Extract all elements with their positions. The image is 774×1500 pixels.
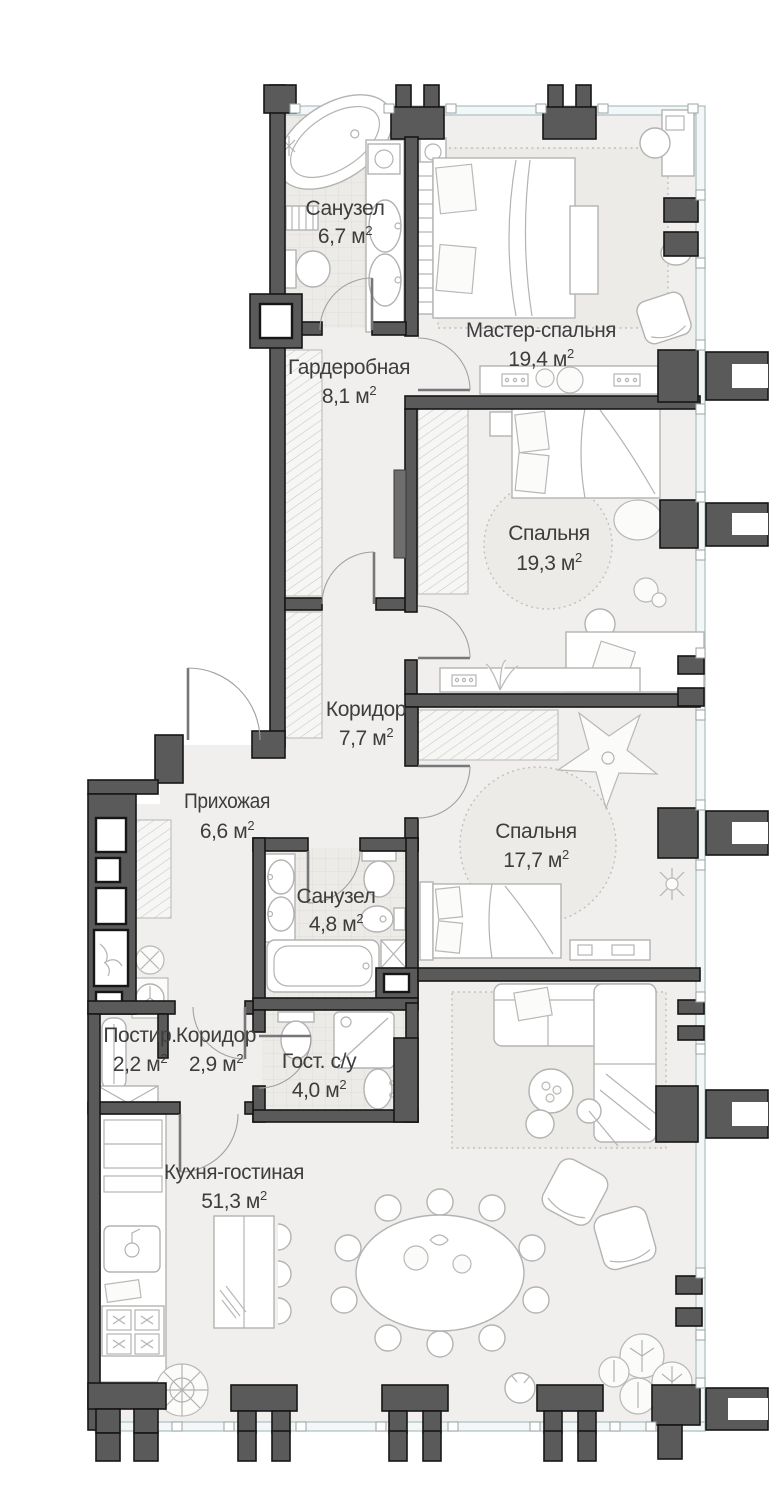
hallway-closet bbox=[133, 820, 171, 918]
room-area: 17,7 м2 bbox=[503, 847, 569, 872]
room-name: Спальня bbox=[495, 820, 577, 843]
nightstand bbox=[490, 412, 512, 436]
wall-bath2-guestwc bbox=[253, 998, 418, 1010]
pillow bbox=[436, 164, 477, 214]
coffee-table bbox=[529, 1069, 573, 1113]
shaft bbox=[94, 930, 128, 986]
table-decor bbox=[453, 1255, 471, 1273]
column-assembly-right bbox=[660, 500, 768, 548]
room-area: 6,6 м2 bbox=[200, 818, 254, 843]
bedroom-2-closet bbox=[418, 408, 468, 594]
column-assembly-right bbox=[656, 1086, 768, 1142]
bathtub bbox=[267, 940, 379, 992]
shaft bbox=[96, 818, 126, 852]
sink-2 bbox=[369, 254, 401, 306]
washer bbox=[368, 144, 400, 174]
sofa-chaise bbox=[594, 984, 656, 1142]
dining-chair bbox=[479, 1325, 505, 1351]
pillow bbox=[435, 921, 462, 953]
room-name: Спальня bbox=[508, 522, 590, 545]
right-window-wall bbox=[696, 106, 705, 1431]
bed-headboard bbox=[420, 882, 433, 960]
room-name: Коридор bbox=[176, 1024, 256, 1047]
pilaster-right bbox=[678, 688, 704, 706]
pillow bbox=[515, 453, 549, 494]
column-top-2 bbox=[543, 107, 596, 139]
dining-chair bbox=[335, 1235, 361, 1261]
pilaster-right bbox=[664, 232, 698, 256]
column-corner-bottom-right bbox=[652, 1385, 768, 1459]
room-name: Прихожая bbox=[184, 790, 270, 813]
room-area: 51,3 м2 bbox=[201, 1188, 267, 1213]
room-area: 19,3 м2 bbox=[516, 550, 582, 575]
dining-chair bbox=[331, 1287, 357, 1313]
wall-wardrobe-bedroom2 bbox=[405, 409, 417, 612]
sink-1 bbox=[268, 860, 294, 894]
corridor-closet bbox=[285, 612, 322, 738]
column-assembly-right bbox=[658, 350, 768, 402]
dining-chair bbox=[523, 1287, 549, 1313]
wardrobe-closet-left bbox=[285, 350, 322, 596]
dining-table bbox=[356, 1215, 524, 1331]
wall-bath2-left bbox=[253, 838, 265, 1010]
sofa-pillow bbox=[514, 987, 552, 1020]
dining-chair bbox=[375, 1325, 401, 1351]
room-area: 4,8 м2 bbox=[309, 911, 363, 936]
entrance-jamb-left bbox=[155, 735, 183, 783]
room-area: 8,1 м2 bbox=[322, 383, 376, 408]
room-name: Гардеробная bbox=[288, 356, 410, 379]
wall-left-main bbox=[270, 85, 285, 747]
room-area: 6,7 м2 bbox=[318, 223, 372, 248]
dining-chair bbox=[519, 1235, 545, 1261]
dining-chair bbox=[427, 1189, 453, 1215]
beanbag bbox=[614, 500, 662, 540]
entrance-door bbox=[188, 668, 260, 740]
entrance-jamb-right bbox=[252, 731, 285, 758]
bedroom-3-closet bbox=[418, 710, 558, 760]
shaft bbox=[96, 888, 126, 924]
guestwc-column bbox=[394, 1038, 418, 1122]
toilet-bowl bbox=[296, 251, 330, 287]
pillow bbox=[435, 887, 462, 919]
room-area: 4,0 м2 bbox=[292, 1077, 346, 1102]
decor-pot bbox=[505, 1373, 535, 1403]
cutting-board bbox=[105, 1280, 141, 1303]
pilaster-right bbox=[664, 198, 698, 222]
room-area: 2,9 м2 bbox=[189, 1051, 243, 1076]
bidet-mount bbox=[394, 908, 405, 930]
room-name: Санузел bbox=[305, 197, 384, 220]
toilet-tank bbox=[285, 250, 296, 288]
pilaster-right bbox=[676, 1308, 702, 1326]
dresser bbox=[570, 940, 650, 960]
room-name: Коридор bbox=[326, 698, 406, 721]
pillow bbox=[515, 411, 549, 452]
room-name: Кухня-гостиная bbox=[164, 1161, 304, 1184]
shaft bbox=[260, 304, 292, 338]
dining-chair bbox=[427, 1331, 453, 1357]
desk-chair bbox=[640, 128, 670, 158]
sink bbox=[364, 1069, 392, 1109]
toilet-tank bbox=[362, 851, 396, 861]
pilaster-right bbox=[678, 656, 704, 674]
room-area: 19,4 м2 bbox=[508, 346, 574, 371]
shaft bbox=[384, 974, 409, 992]
stove bbox=[102, 1306, 164, 1356]
dining-chair bbox=[479, 1195, 505, 1221]
bedroom-2-rug bbox=[484, 481, 612, 609]
bidet bbox=[361, 906, 393, 932]
floor-plan: Санузел 6,7 м2 Мастер-спальня 19,4 м2 Га… bbox=[0, 0, 774, 1500]
sink-2 bbox=[268, 897, 294, 931]
wall-bedroom2-bedroom3 bbox=[405, 694, 700, 707]
column-assembly-right bbox=[658, 808, 768, 858]
room-name: Постир. bbox=[103, 1024, 176, 1047]
room-area: 2,2 м2 bbox=[113, 1051, 167, 1076]
pilaster-right bbox=[676, 1276, 702, 1294]
room-name: Санузел bbox=[296, 885, 375, 908]
wall-left-lower bbox=[88, 1014, 100, 1430]
dining-chair bbox=[375, 1195, 401, 1221]
side-table bbox=[526, 1110, 554, 1138]
bed-headboard bbox=[418, 162, 433, 314]
pilaster-right bbox=[678, 1026, 704, 1040]
room-name: Мастер-спальня bbox=[466, 319, 616, 342]
shaft bbox=[96, 858, 120, 882]
room-name: Гост. с/у bbox=[282, 1050, 357, 1073]
room-area: 7,7 м2 bbox=[339, 725, 393, 750]
wardrobe-mirror bbox=[394, 470, 406, 558]
wall-bath-master bbox=[405, 137, 418, 336]
wall-master-bedroom2 bbox=[405, 396, 700, 409]
pillow bbox=[436, 245, 476, 294]
column-top-1 bbox=[391, 107, 444, 139]
wall-bedroom3-living bbox=[418, 968, 700, 981]
floor-plan-svg: Санузел 6,7 м2 Мастер-спальня 19,4 м2 Га… bbox=[0, 0, 774, 1500]
bed-bench bbox=[570, 206, 598, 294]
table-decor bbox=[404, 1246, 428, 1270]
